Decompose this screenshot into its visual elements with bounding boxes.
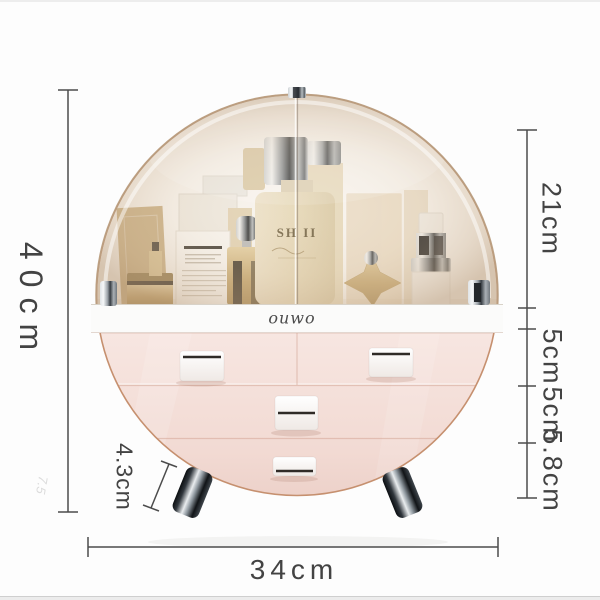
dome-top-hinge	[288, 87, 306, 98]
drawer-handle-middle	[271, 396, 321, 437]
leg-left	[171, 465, 215, 520]
bottom-edge-strip	[0, 596, 600, 600]
drawer-handle-top-left	[176, 351, 226, 387]
product-dimension-diagram: 40cm 21cm 5cm 5cm 5.8cm 34cm 4.3cm ouwo …	[0, 0, 600, 600]
drawer-handle-bottom	[270, 457, 318, 482]
dome-hinge-right	[468, 280, 490, 305]
height-dimension-line	[58, 90, 78, 512]
top-edge-strip	[0, 0, 600, 2]
drawer1-height-dimension-label: 5cm	[539, 328, 566, 385]
brand-logo: ouwo	[268, 309, 315, 328]
dome-hinge-left	[100, 281, 117, 306]
floor-shadow	[148, 536, 448, 548]
product-illustration	[0, 0, 600, 600]
drawer3-height-dimension-label: 5.8cm	[539, 429, 566, 513]
drawer-handle-top-right	[366, 348, 416, 383]
right-dimension-line	[517, 130, 537, 498]
organizer-body	[90, 88, 504, 503]
dome-height-dimension-label: 21cm	[538, 182, 565, 256]
height-dimension-label: 40cm	[15, 242, 47, 360]
leg-height-dimension-label: 4.3cm	[113, 443, 136, 511]
leg-right	[381, 465, 425, 520]
faint-watermark: 7.5	[33, 475, 51, 495]
leg-dimension-line	[143, 461, 177, 511]
width-dimension-label: 34cm	[250, 556, 338, 584]
acrylic-dome	[96, 94, 499, 306]
essence-bottle-label: SH II	[277, 225, 318, 241]
drawer-block	[90, 333, 504, 503]
